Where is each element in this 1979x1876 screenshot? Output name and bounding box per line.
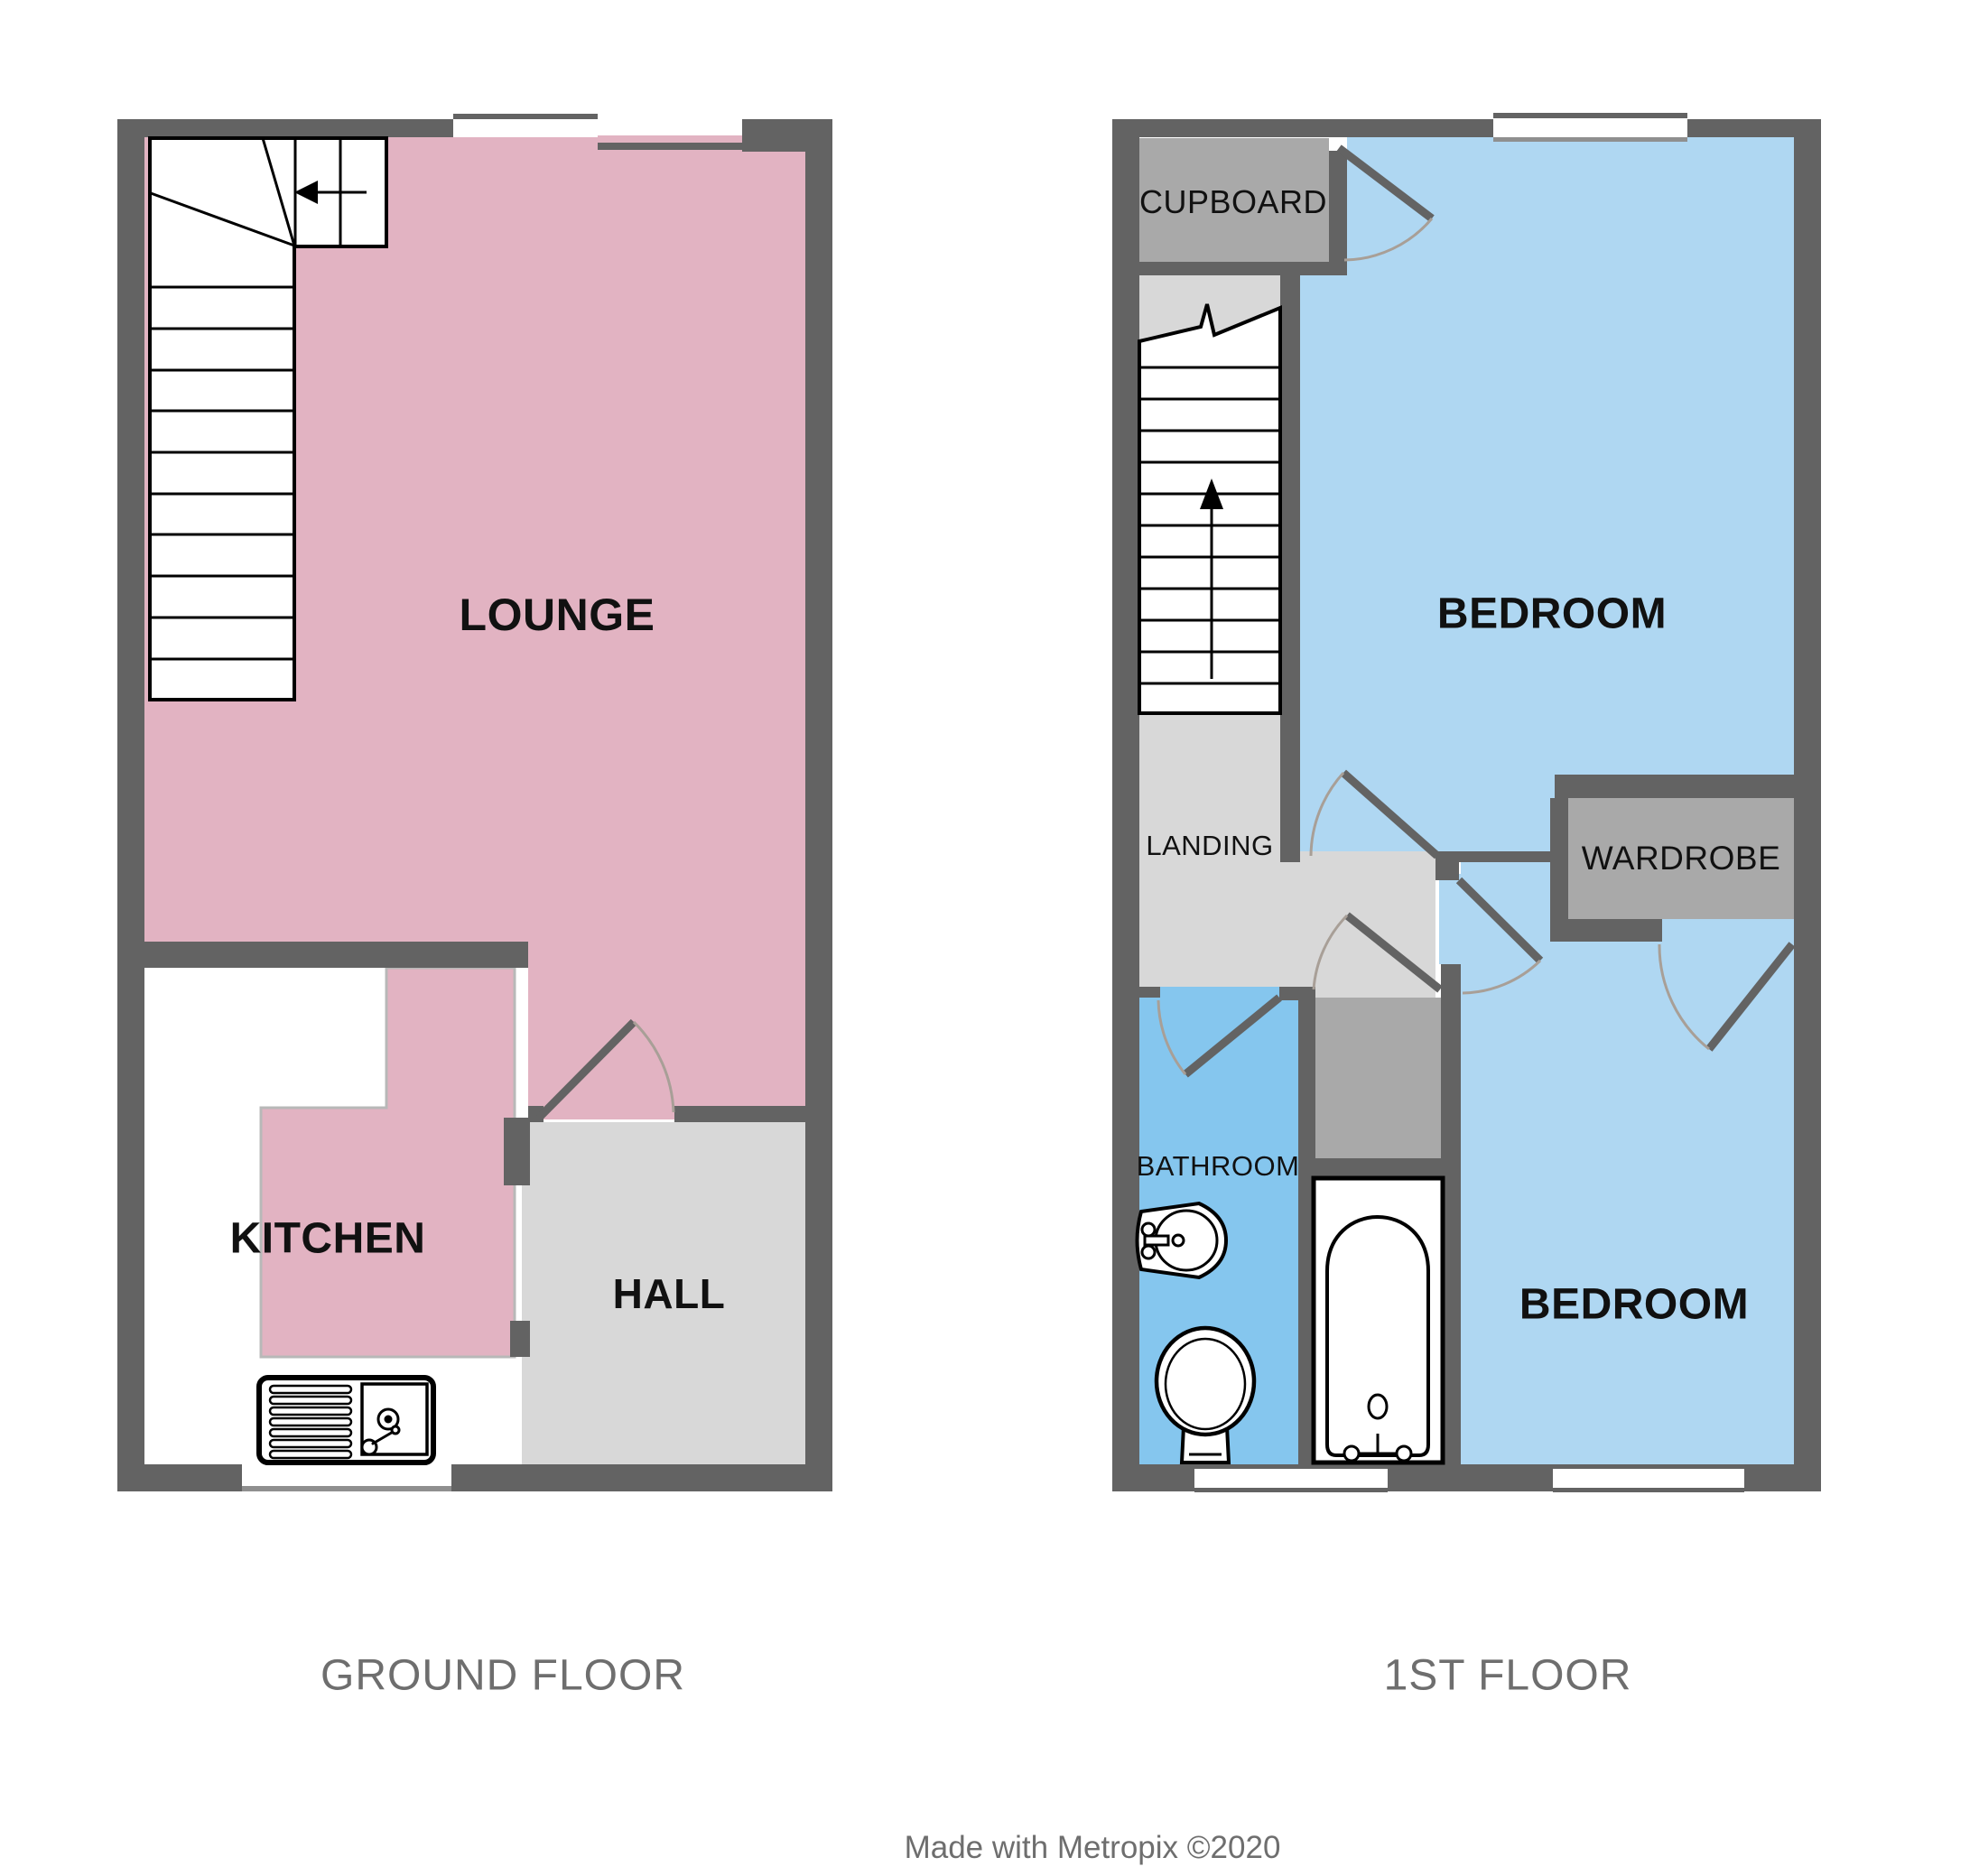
kitchen-window-sill <box>242 1486 451 1491</box>
landing-label: LANDING <box>1146 830 1273 862</box>
bedroom-front-window <box>1493 118 1687 137</box>
landing-bottom-stub <box>1139 987 1160 998</box>
bath-alcove-floor <box>1315 1181 1441 1464</box>
store-door-threshold <box>1303 987 1435 998</box>
hall-label: HALL <box>613 1269 726 1318</box>
landing-floor-step <box>1280 860 1300 987</box>
bathroom-label: BATHROOM <box>1137 1150 1300 1183</box>
kitchen-label: KITCHEN <box>230 1214 426 1264</box>
bathroom-store-wall <box>1298 987 1315 1464</box>
store-bottom-wall <box>1298 1158 1461 1181</box>
hall-door-hinge-post <box>528 1106 544 1122</box>
lounge-kitchen-wall <box>143 942 528 968</box>
bedroom-front-floor-left <box>1300 275 1347 851</box>
landing-corridor <box>1300 851 1435 998</box>
store-bedroom-wall <box>1441 964 1461 1464</box>
kitchen-hall-wall-lower <box>510 1321 530 1357</box>
ground-wall-right <box>805 119 832 1491</box>
bedroom-back-floor-left <box>1461 862 1568 1464</box>
cupboard-label: CUPBOARD <box>1139 183 1327 221</box>
hall-top-wall <box>674 1106 806 1122</box>
wardrobe-label: WARDROBE <box>1582 840 1781 878</box>
wardrobe-door-threshold <box>1662 919 1794 942</box>
landing-floor <box>1139 275 1280 987</box>
bathroom-floor <box>1139 987 1298 1464</box>
bedroom-back-door-threshold <box>1439 874 1461 964</box>
bedroom-back-window <box>1553 1469 1744 1488</box>
bedroom-back-floor <box>1568 942 1794 1464</box>
wardrobe-bottom-wall <box>1550 919 1662 942</box>
ground-wall-bottom <box>117 1464 832 1491</box>
bedroom-front-floor-lower <box>1347 775 1555 851</box>
bathroom-window-frame-bottom <box>1194 1488 1388 1492</box>
first-floor-caption: 1ST FLOOR <box>1384 1651 1632 1701</box>
cupboard-bottom-wall <box>1139 262 1347 275</box>
bedroom-front-window-sill <box>1493 137 1687 142</box>
bedroom-front-label: BEDROOM <box>1437 590 1667 639</box>
bedroom-back-window-frame-bottom <box>1553 1488 1744 1492</box>
ground-wall-top <box>117 119 453 137</box>
kitchen-window <box>242 1464 451 1486</box>
wardrobe-top-wall <box>1555 775 1794 798</box>
lounge-label: LOUNGE <box>460 589 655 641</box>
first-wall-left <box>1112 119 1139 1491</box>
lounge-window-left <box>453 119 598 137</box>
metropix-credit: Made with Metropix ©2020 <box>905 1830 1281 1866</box>
bedroom-back-label: BEDROOM <box>1519 1280 1749 1330</box>
cupboard-right-wall <box>1329 151 1347 275</box>
kitchen-hall-wall-upper <box>504 1118 530 1185</box>
bathroom-window <box>1194 1469 1388 1488</box>
lounge-floor <box>144 135 806 942</box>
ground-floor-plan <box>0 0 993 1580</box>
stairs-landing-wall <box>1280 275 1300 862</box>
bedroom-front-door-post <box>1435 851 1459 880</box>
first-wall-top <box>1112 119 1821 137</box>
ground-wall-left <box>117 119 144 1491</box>
lounge-floor-lower <box>528 942 806 1106</box>
floorplan-canvas: LOUNGE KITCHEN HALL CUPBOARD BEDROOM LAN… <box>0 0 1979 1876</box>
lounge-window-frame-right <box>598 143 742 150</box>
store-cupboard-floor <box>1315 998 1441 1158</box>
lounge-door-threshold <box>528 1106 674 1119</box>
first-wall-right <box>1794 119 1821 1491</box>
ground-floor-caption: GROUND FLOOR <box>321 1651 685 1701</box>
bedroom-front-floor <box>1347 135 1794 775</box>
